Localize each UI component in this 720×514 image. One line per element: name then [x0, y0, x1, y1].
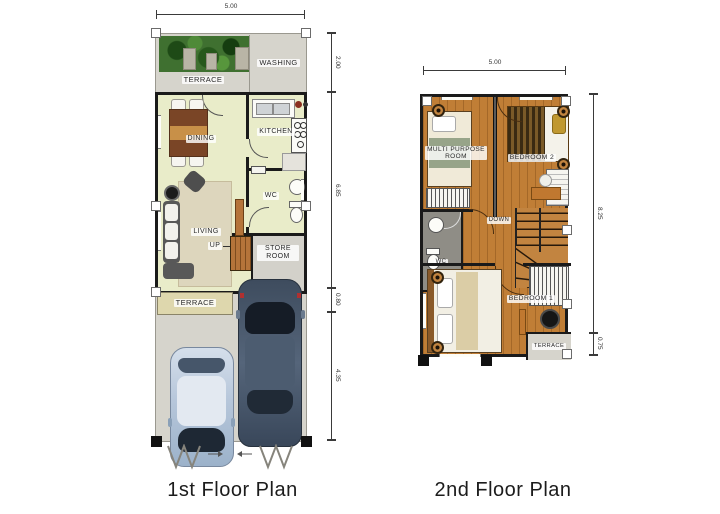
side-table	[164, 185, 180, 201]
kitchen-sink	[252, 99, 295, 118]
dim-tick	[423, 66, 424, 75]
dim-line-right-1	[331, 33, 332, 441]
dim-line-right-2	[593, 94, 594, 356]
column-post	[562, 225, 572, 235]
wc-door-arc	[444, 212, 461, 229]
sofa-cushion	[165, 204, 178, 221]
column-post	[301, 201, 311, 211]
floor-plan-sheet: 5.00 2.00 6.85 0.80 4.35 TERRACE WASHING	[0, 0, 720, 514]
stair-rail	[235, 199, 244, 236]
car-rear-window	[247, 390, 293, 414]
kitchen-accessory	[303, 102, 308, 107]
car-mirror	[231, 418, 235, 427]
bed-blanket	[456, 272, 478, 350]
wc-sink	[428, 217, 444, 233]
dim-tick	[327, 91, 336, 93]
terrace-front-label: TERRACE	[158, 297, 232, 309]
dim-tick	[565, 66, 566, 75]
bedroom-2-door-arc	[497, 97, 522, 122]
stairs-down	[515, 208, 568, 246]
sofa	[163, 201, 180, 263]
car-windshield	[245, 302, 295, 334]
window	[441, 97, 473, 100]
sofa-chaise	[163, 263, 194, 279]
column-post	[561, 96, 571, 106]
car-mirror	[168, 418, 172, 427]
ceiling-light	[432, 104, 445, 117]
wardrobe	[426, 188, 470, 208]
car-rear-window	[178, 358, 225, 373]
car-suv	[238, 279, 302, 447]
dim-value-2b: 0.75	[596, 331, 603, 355]
vent	[251, 166, 266, 174]
ceiling-light	[431, 271, 444, 284]
down-label: DOWN	[481, 216, 517, 225]
stepping-stone	[235, 47, 249, 70]
car-roof	[245, 336, 295, 388]
column-post-black	[301, 436, 312, 447]
window	[158, 115, 161, 149]
washing-label: WASHING	[250, 57, 307, 69]
terrace-top-label: TERRACE	[158, 74, 248, 86]
first-floor-plan: TERRACE WASHING DINING	[155, 33, 307, 442]
dim-value-2a: 8.25	[596, 198, 603, 228]
sink-basin	[273, 103, 290, 115]
stool	[539, 174, 552, 187]
stepping-stone	[183, 48, 196, 70]
dining-label: DINING	[172, 134, 230, 144]
dim-line-top-1	[157, 14, 305, 15]
second-floor-title: 2nd Floor Plan	[418, 479, 588, 502]
kitchen-wall	[246, 95, 249, 139]
desk-narrow	[519, 309, 526, 335]
kitchen-accessory	[295, 101, 302, 108]
column-post	[301, 28, 311, 38]
sink-basin	[256, 103, 273, 115]
column-post	[562, 299, 572, 309]
first-floor-interior: DINING KITCHEN WC	[155, 92, 307, 294]
ceiling-light	[557, 105, 570, 118]
second-floor-plan: MULTI PURPOSE ROOM BEDROOM 2 WC	[420, 94, 568, 357]
dim-tick	[304, 10, 305, 19]
driveway-slope-marks	[160, 444, 302, 471]
column-post	[422, 96, 432, 106]
living-label: LIVING	[182, 227, 230, 237]
stair-rail	[539, 208, 541, 252]
column-post	[151, 201, 161, 211]
garden-planting	[159, 36, 249, 72]
up-label: UP	[206, 241, 224, 251]
kitchen-label: KITCHEN	[250, 127, 302, 137]
dim-tick	[327, 32, 336, 34]
stove-burner	[297, 141, 304, 148]
ceiling-light	[431, 341, 444, 354]
window	[301, 179, 304, 201]
dim-value-1a: 2.00	[334, 47, 341, 77]
sofa-cushion	[165, 242, 178, 259]
dim-tick	[327, 439, 336, 441]
bedroom-1-wall	[423, 263, 495, 266]
bedroom-1-label: BEDROOM 1	[497, 294, 565, 304]
dim-tick	[327, 311, 336, 313]
car-roof	[177, 376, 226, 426]
dim-tick	[156, 10, 157, 19]
multi-purpose-room-label: MULTI PURPOSE ROOM	[423, 143, 489, 163]
chair-black	[540, 309, 560, 329]
car-mirror	[301, 310, 305, 319]
desk	[531, 187, 561, 200]
kitchen-counter	[282, 153, 306, 171]
bed-pillow	[432, 116, 456, 132]
column-post	[151, 28, 161, 38]
window	[439, 354, 481, 357]
kitchen-door-arc	[249, 139, 268, 158]
front-terrace: TERRACE	[157, 292, 233, 315]
sofa-cushion	[165, 223, 178, 240]
window	[158, 211, 161, 251]
window	[423, 293, 426, 329]
wc-wall	[246, 171, 249, 207]
up-arrow	[223, 246, 230, 247]
store-room-label: STORE ROOM	[255, 243, 301, 263]
dining-table	[169, 109, 208, 157]
dim-value-width-2: 5.00	[424, 57, 566, 67]
carport	[155, 294, 307, 442]
column-post-black	[418, 355, 429, 366]
bedroom-2-label: BEDROOM 2	[499, 153, 565, 163]
stepping-stone	[206, 53, 217, 70]
dim-value-1d: 4.35	[334, 360, 341, 390]
car-mirror	[236, 310, 240, 319]
wc-door-arc	[249, 207, 269, 227]
room-divider-wall	[493, 97, 497, 217]
dim-value-1c: 0.80	[334, 287, 341, 311]
dim-line-top-2	[424, 70, 566, 71]
window	[519, 97, 553, 100]
first-floor-title: 1st Floor Plan	[150, 479, 315, 502]
car-light-marker	[297, 293, 301, 298]
dim-value-width-1: 5.00	[157, 1, 305, 11]
dim-value-1b: 6.85	[334, 175, 341, 205]
service-strip: TERRACE WASHING	[155, 33, 307, 93]
wc-label: WC	[258, 191, 284, 201]
column-post	[562, 349, 572, 359]
dim-tick	[589, 93, 598, 95]
column-post-black	[481, 355, 492, 366]
column-post	[151, 287, 161, 297]
car-light-marker	[240, 293, 244, 298]
bed-pillow	[437, 314, 453, 344]
